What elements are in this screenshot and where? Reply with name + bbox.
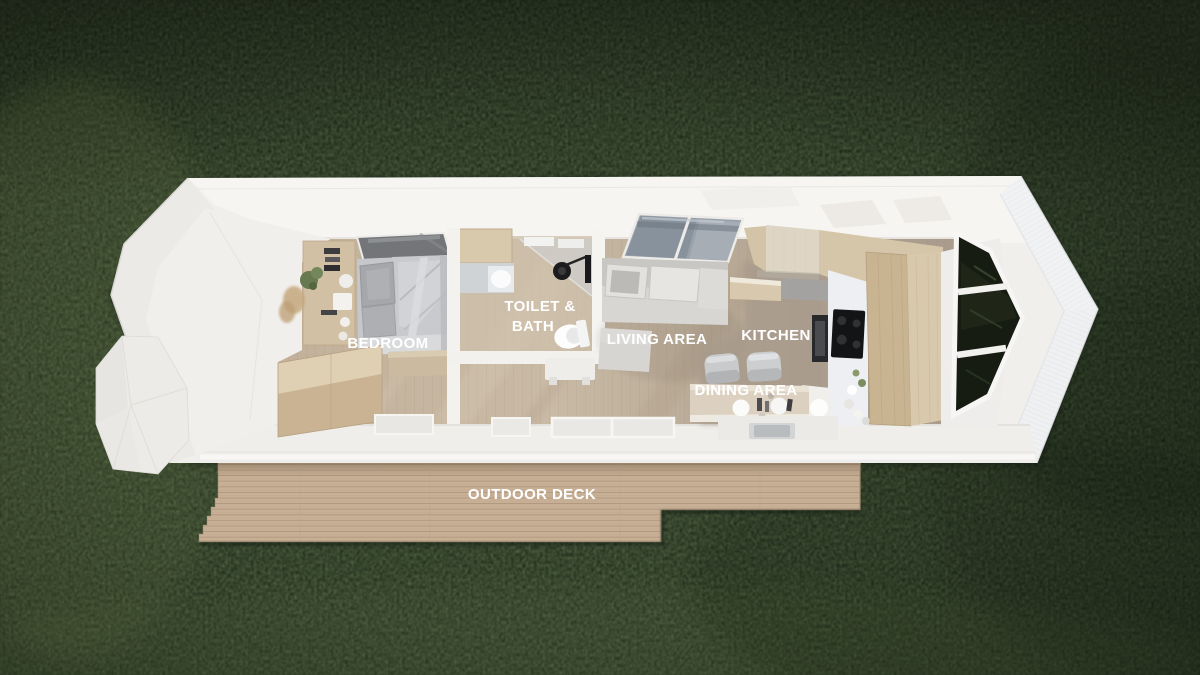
svg-text:OUTDOOR DECK: OUTDOOR DECK (468, 486, 596, 503)
svg-text:KITCHEN: KITCHEN (741, 327, 810, 344)
svg-text:BATH: BATH (512, 318, 554, 335)
svg-text:TOILET &: TOILET & (504, 298, 575, 315)
svg-text:BEDROOM: BEDROOM (347, 335, 428, 352)
svg-text:DINING AREA: DINING AREA (694, 382, 797, 399)
svg-text:LIVING AREA: LIVING AREA (607, 331, 708, 348)
